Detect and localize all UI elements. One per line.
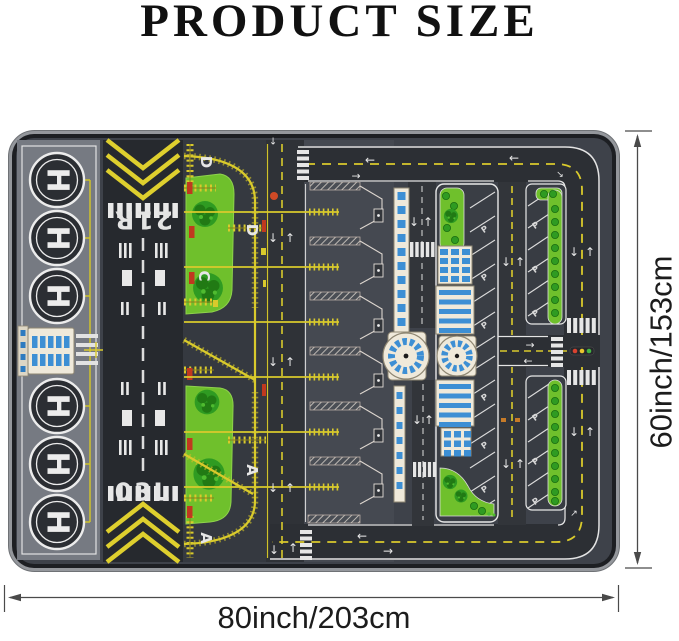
runway-designator-03L: 03L [115, 478, 172, 507]
height-label: 60inch/153cm [644, 137, 678, 567]
runway-designator-21R: 21R [113, 206, 173, 235]
taxiway-label-a: A [197, 532, 215, 544]
taxiway-label-c: C [195, 270, 213, 281]
terminal-rotunda [437, 336, 477, 376]
traffic-light-icon [570, 347, 594, 355]
taxiway-label-d: D [197, 156, 215, 168]
page-title: PRODUCT SIZE [0, 0, 679, 48]
terminal-rotunda [383, 333, 429, 379]
service-road [266, 140, 304, 562]
service-road-marker [270, 192, 278, 200]
runway: 21R 03L [103, 140, 183, 562]
taxiway-label-d: D [243, 224, 261, 236]
taxiway-label-a: A [243, 464, 261, 476]
mat-illustration: H P ↑ ↓ ← → ↗ ↙ ↘ [8, 130, 620, 572]
taxiway-zone: D D C A A [183, 140, 275, 562]
width-label: 80inch/203cm [8, 600, 620, 636]
